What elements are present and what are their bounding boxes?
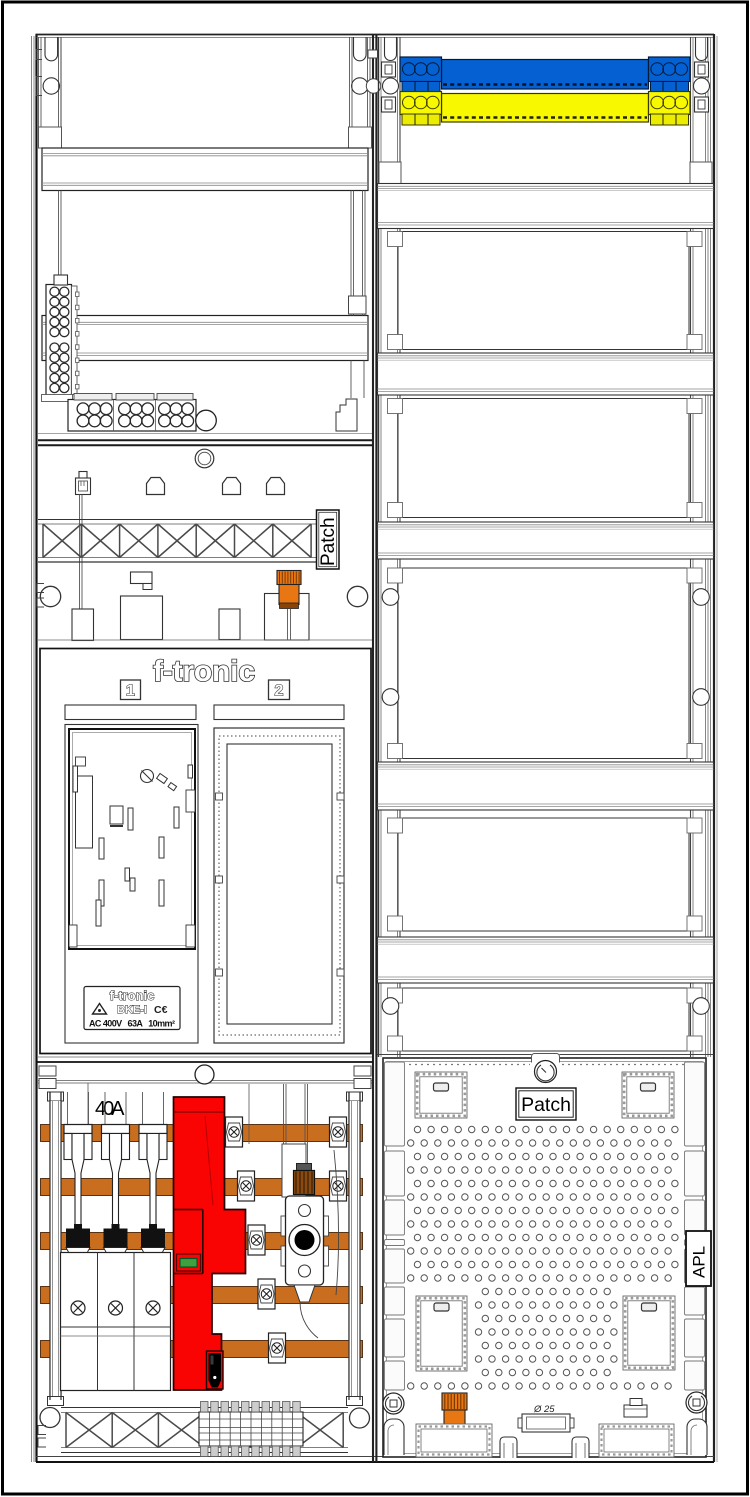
svg-text:APL: APL [690,1246,709,1278]
svg-text:40A: 40A [95,1098,125,1120]
svg-text:Ø 25: Ø 25 [533,1404,555,1415]
svg-text:f-tronic: f-tronic [110,988,155,1003]
svg-text:C€: C€ [154,1004,168,1016]
svg-text:2: 2 [275,683,284,700]
svg-text:f-tronic: f-tronic [153,655,255,688]
svg-text:AC 400V 63A 10mm²: AC 400V 63A 10mm² [89,1019,175,1029]
svg-text:Patch: Patch [318,517,339,566]
svg-text:Patch: Patch [521,1094,571,1116]
svg-text:BKE-I: BKE-I [117,1004,147,1016]
svg-text:1: 1 [126,683,135,700]
